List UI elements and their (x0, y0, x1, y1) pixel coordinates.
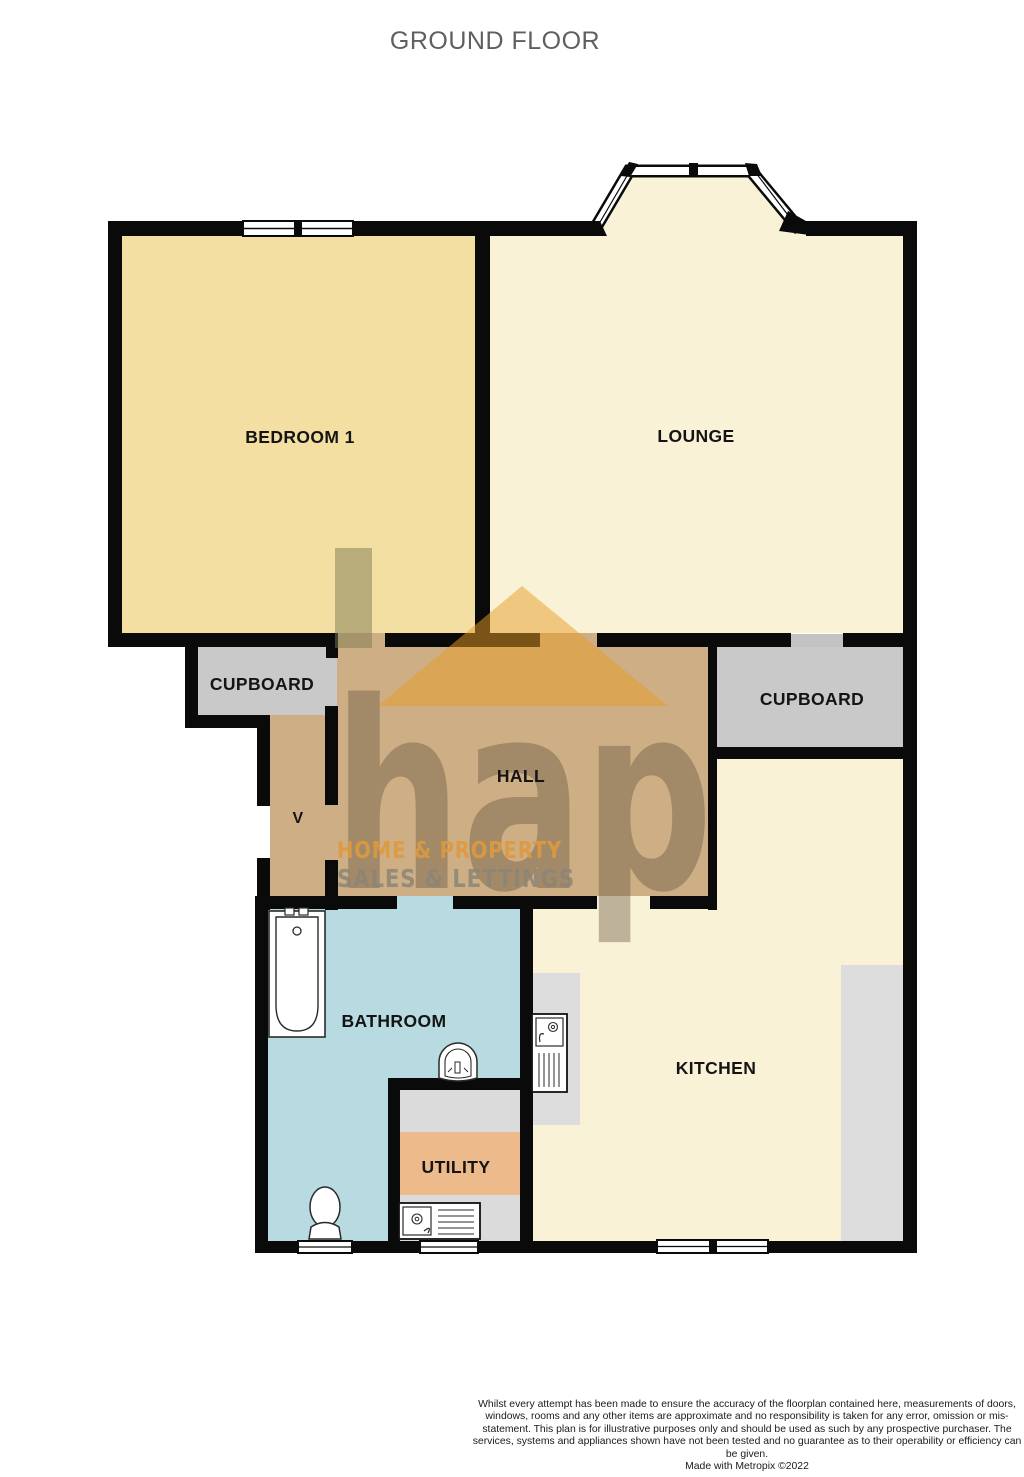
utility-sink-icon (399, 1203, 480, 1239)
window-utility (420, 1241, 478, 1253)
wall-segment (108, 221, 122, 646)
kitchen-sink-icon (532, 1014, 567, 1092)
wall-segment (108, 633, 333, 647)
floor-plan: hap HOME & PROPERTY SALES & LETTINGS BED… (0, 0, 1024, 1477)
disclaimer-text: Whilst every attempt has been made to en… (468, 1399, 1024, 1461)
wall-segment (255, 896, 268, 1253)
door-gap-cupboard-right (791, 634, 843, 647)
wall-segment (478, 1241, 657, 1253)
toilet-icon (309, 1187, 341, 1239)
floorplan-page: GROUND FLOOR (0, 0, 1024, 1477)
watermark-chimney (335, 548, 372, 648)
footer: Whilst every attempt has been made to en… (468, 1399, 1024, 1473)
wall-segment (352, 1241, 420, 1253)
wall-segment (597, 633, 791, 647)
label-bedroom1: BEDROOM 1 (245, 427, 355, 447)
wall-segment (768, 1241, 917, 1253)
wall-segment (255, 1241, 298, 1253)
wall-segment (520, 909, 533, 1241)
wall-segment (108, 221, 243, 236)
wall-segment (475, 236, 490, 647)
label-kitchen: KITCHEN (676, 1058, 757, 1078)
room-fill-vestibule (270, 715, 325, 896)
washbasin-icon (439, 1043, 477, 1081)
kitchen-counter-right (841, 965, 903, 1241)
bay-window-divider (689, 163, 698, 177)
wall-segment (903, 221, 917, 1253)
window-kitchen (657, 1239, 768, 1254)
watermark-line2: SALES & LETTINGS (337, 864, 575, 893)
wall-segment (185, 633, 198, 728)
label-utility: UTILITY (422, 1157, 491, 1177)
wall-segment (353, 221, 588, 236)
utility-counter-top (400, 1090, 520, 1132)
watermark-word: hap (333, 648, 713, 950)
credit-text: Made with Metropix ©2022 (468, 1461, 1024, 1473)
label-bathroom: BATHROOM (342, 1011, 447, 1031)
window-bedroom (243, 220, 353, 237)
label-cupboard-right: CUPBOARD (760, 689, 864, 709)
label-lounge: LOUNGE (657, 426, 734, 446)
label-vestibule: V (292, 810, 303, 827)
label-cupboard-left: CUPBOARD (210, 674, 314, 694)
wall-segment (257, 715, 270, 806)
watermark-line1: HOME & PROPERTY (337, 838, 562, 864)
wall-segment (708, 747, 903, 759)
label-hall: HALL (497, 766, 545, 786)
bathtub-icon (269, 908, 325, 1037)
wall-segment (806, 221, 917, 236)
window-bathroom (298, 1241, 352, 1253)
